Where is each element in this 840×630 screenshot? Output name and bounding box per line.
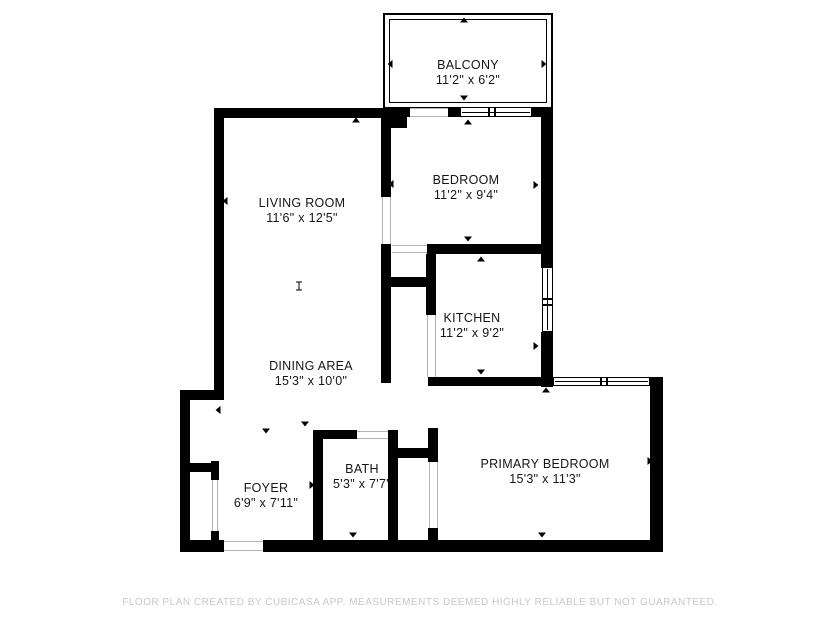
window: [460, 107, 532, 117]
window-divider: [606, 378, 608, 385]
wall-segment: [428, 428, 438, 462]
footer-disclaimer: FLOOR PLAN CREATED BY CUBICASA APP. MEAS…: [0, 597, 840, 608]
floorplan-canvas: BALCONY 11'2" x 6'2" BEDROOM 11'2" x 9'4…: [0, 0, 840, 630]
window-divider: [543, 304, 552, 306]
room-dims: 6'9" x 7'11": [234, 496, 298, 511]
room-dims: 11'6" x 12'5": [259, 211, 346, 226]
wall-segment: [428, 377, 553, 386]
wall-segment: [426, 254, 436, 315]
room-label-bedroom: BEDROOM 11'2" x 9'4": [433, 173, 500, 203]
dimension-tick: [460, 18, 468, 23]
door-opening: [429, 462, 438, 528]
room-dims: 15'3" x 10'0": [269, 374, 353, 389]
room-name: KITCHEN: [440, 311, 504, 326]
room-dims: 11'2" x 9'2": [440, 326, 504, 341]
dimension-tick: [301, 422, 309, 427]
dimension-tick: [262, 429, 270, 434]
wall-segment: [313, 430, 357, 439]
room-dims: 5'3" x 7'7": [333, 477, 391, 492]
wall-segment: [383, 107, 410, 117]
door-opening: [407, 108, 448, 117]
window-divider: [494, 108, 496, 116]
wall-segment: [398, 448, 428, 458]
door-opening: [212, 480, 218, 531]
wall-segment: [532, 107, 553, 117]
door-opening: [224, 541, 263, 551]
dimension-tick: [310, 481, 315, 489]
door-opening: [357, 431, 388, 439]
dimension-tick: [464, 120, 472, 125]
dimension-tick: [477, 257, 485, 262]
room-name: DINING AREA: [269, 359, 353, 374]
door-opening: [392, 245, 427, 253]
dimension-tick: [542, 60, 547, 68]
room-label-balcony: BALCONY 11'2" x 6'2": [436, 58, 500, 88]
wall-segment: [211, 461, 219, 480]
dimension-tick: [542, 388, 550, 393]
wall-segment: [427, 244, 553, 254]
room-name: PRIMARY BEDROOM: [480, 457, 609, 472]
window: [553, 377, 650, 386]
wall-segment: [211, 531, 219, 542]
wall-segment: [214, 108, 394, 118]
dimension-tick: [648, 457, 653, 465]
room-label-dining-area: DINING AREA 15'3" x 10'0": [269, 359, 353, 389]
wall-segment: [381, 244, 391, 383]
dimension-tick: [534, 342, 539, 350]
dimension-tick: [296, 282, 302, 291]
room-label-kitchen: KITCHEN 11'2" x 9'2": [440, 311, 504, 341]
dimension-tick: [538, 533, 546, 538]
room-name: FOYER: [234, 481, 298, 496]
window: [542, 267, 553, 332]
wall-segment: [448, 107, 460, 117]
dimension-tick: [388, 60, 393, 68]
dimension-tick: [464, 237, 472, 242]
room-name: BATH: [333, 462, 391, 477]
wall-segment: [214, 108, 224, 398]
wall-segment: [263, 540, 663, 552]
window-divider: [543, 298, 552, 300]
window-pane-line: [462, 112, 530, 113]
room-label-living-room: LIVING ROOM 11'6" x 12'5": [259, 196, 346, 226]
dimension-tick: [477, 370, 485, 375]
door-opening: [427, 315, 436, 377]
room-name: LIVING ROOM: [259, 196, 346, 211]
room-label-primary-bedroom: PRIMARY BEDROOM 15'3" x 11'3": [480, 457, 609, 487]
dimension-tick: [349, 533, 357, 538]
dimension-tick: [223, 197, 228, 205]
room-name: BALCONY: [436, 58, 500, 73]
room-dims: 11'2" x 9'4": [433, 188, 500, 203]
room-label-bath: BATH 5'3" x 7'7": [333, 462, 391, 492]
room-label-foyer: FOYER 6'9" x 7'11": [234, 481, 298, 511]
window-divider: [488, 108, 490, 116]
dimension-tick: [534, 181, 539, 189]
room-dims: 11'2" x 6'2": [436, 73, 500, 88]
wall-segment: [541, 332, 553, 387]
dimension-tick: [216, 406, 221, 414]
wall-segment: [313, 430, 323, 540]
dimension-tick: [352, 118, 360, 123]
room-name: BEDROOM: [433, 173, 500, 188]
wall-segment: [428, 528, 438, 540]
room-dims: 15'3" x 11'3": [480, 472, 609, 487]
floorplan-drawing: [0, 0, 840, 630]
dimension-tick: [392, 480, 397, 488]
door-opening: [382, 197, 391, 244]
dimension-tick: [389, 180, 394, 188]
dimension-tick: [460, 96, 468, 101]
window-divider: [600, 378, 602, 385]
